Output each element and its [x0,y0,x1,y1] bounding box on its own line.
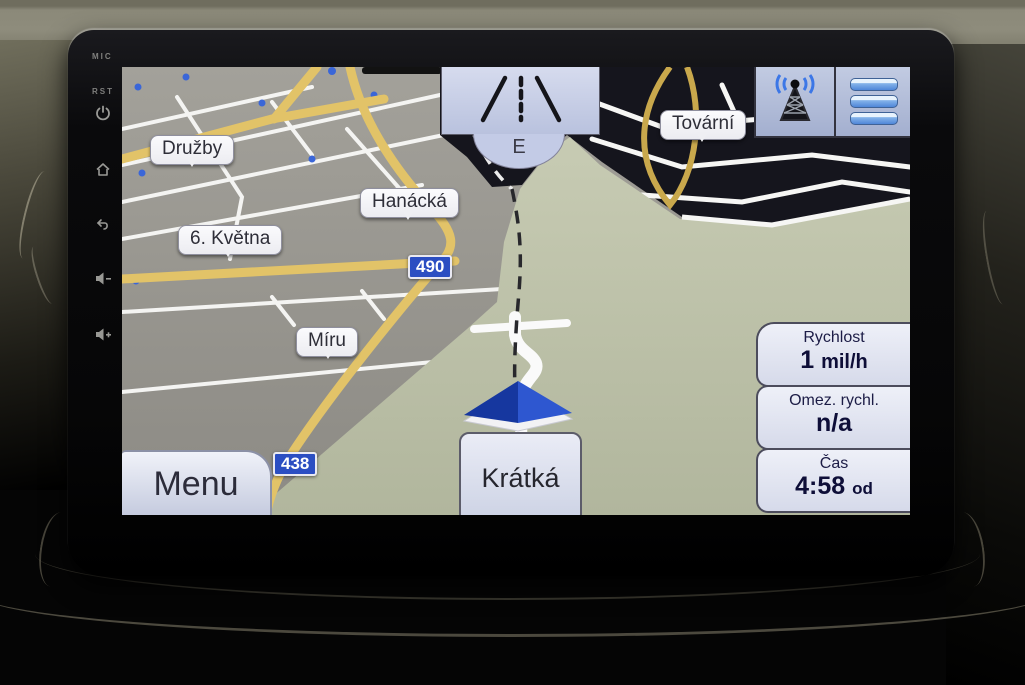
vehicle-position-arrow [460,377,576,435]
speed-value: 1 mil/h [758,347,910,375]
street-label-hanacka: Hanácká [360,188,459,218]
mic-label: MIC [92,52,122,61]
home-button[interactable] [84,152,122,190]
car-interior-scene: MIC RST [0,0,1025,685]
trip-info-panel: Rychlost 1 mil/h Omez. rychl. n/a Čas 4:… [756,322,910,515]
volume-down-button[interactable] [84,262,122,300]
speed-limit-field[interactable]: Omez. rychl. n/a [756,385,910,450]
gps-antenna-icon [771,74,819,129]
lane-assist-sign [441,67,600,135]
map-vehicle-blob [362,67,442,74]
time-field[interactable]: Čas 4:58 od [756,448,910,513]
current-street-panel[interactable]: Krátká [459,432,582,515]
exit-letter: E [512,136,525,158]
volume-down-icon [95,271,112,291]
highway-lanes-icon [471,72,571,129]
volume-up-button[interactable] [84,318,122,356]
road-badge-490: 490 [408,255,452,279]
gps-signal-button[interactable] [754,67,836,138]
volume-up-icon [95,327,112,347]
street-label-druzby: Družby [150,135,234,165]
rst-label: RST [92,87,122,96]
menu-button[interactable]: Menu [122,450,272,515]
home-icon [95,161,111,182]
route-list-icon [850,78,898,125]
time-label: Čas [758,455,910,473]
speed-label: Rychlost [758,329,910,347]
street-label-6kvetna: 6. Května [178,225,282,255]
navigation-screen: E [122,67,910,515]
bezel-button-column: MIC RST [84,52,122,356]
head-unit-tablet: MIC RST [68,30,954,576]
route-list-button[interactable] [834,67,910,138]
power-button[interactable] [84,96,122,134]
speed-limit-value: n/a [758,410,910,436]
time-value: 4:58 od [758,473,910,502]
speed-field[interactable]: Rychlost 1 mil/h [756,322,910,387]
power-icon [95,105,111,126]
street-label-miru: Míru [296,327,358,357]
road-badge-438: 438 [273,452,317,476]
back-icon [95,217,111,238]
back-button[interactable] [84,208,122,246]
street-label-tovarni: Tovární [660,110,746,140]
speed-limit-label: Omez. rychl. [758,392,910,410]
